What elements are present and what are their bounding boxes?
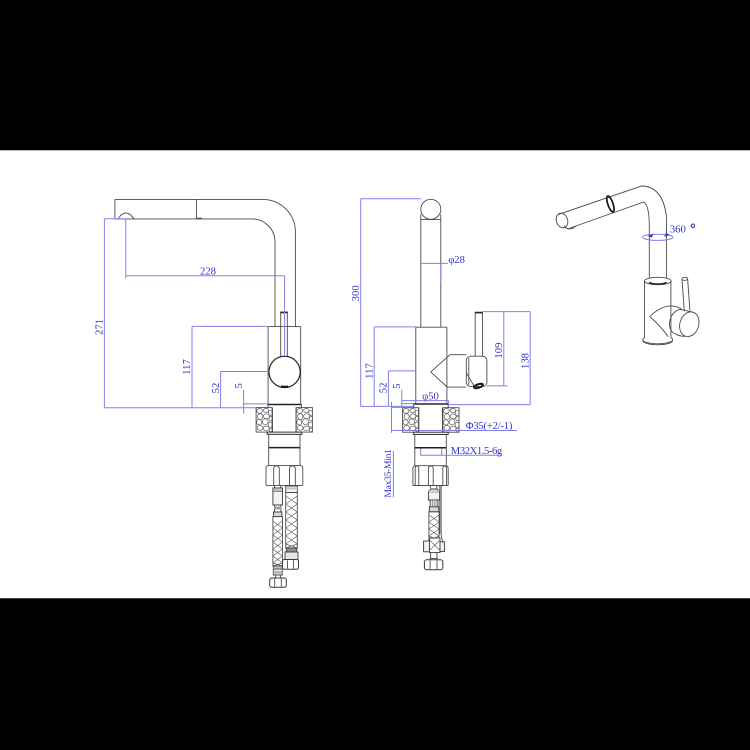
svg-text:5: 5 — [391, 384, 403, 389]
svg-text:138: 138 — [519, 353, 531, 369]
svg-text:Max35-Min1: Max35-Min1 — [383, 449, 394, 498]
svg-text:52: 52 — [210, 383, 222, 394]
svg-text:109: 109 — [493, 343, 505, 359]
svg-text:φ28: φ28 — [448, 255, 465, 266]
svg-text:228: 228 — [200, 266, 216, 278]
svg-text:271: 271 — [94, 319, 106, 335]
svg-text:117: 117 — [363, 363, 375, 379]
svg-text:360: 360 — [670, 224, 686, 236]
svg-text:φ50: φ50 — [422, 391, 439, 402]
svg-text:5: 5 — [233, 383, 245, 388]
svg-text:117: 117 — [181, 359, 193, 375]
svg-text:52: 52 — [378, 383, 390, 394]
svg-text:300: 300 — [350, 285, 362, 301]
